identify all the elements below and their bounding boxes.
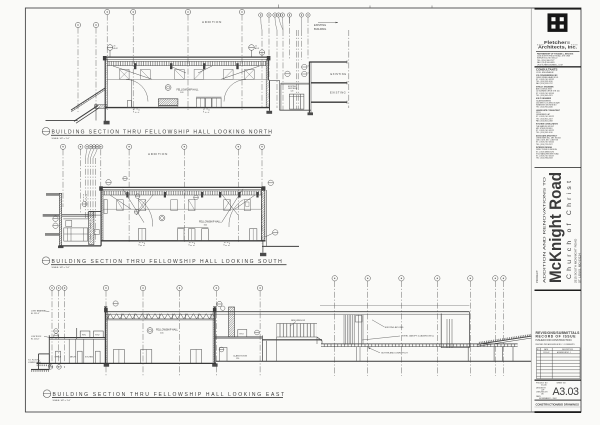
svg-text:120: 120 [236,358,239,360]
svg-text:KITCHEN: KITCHEN [85,357,94,359]
svg-text:EXISTING BEYOND: EXISTING BEYOND [385,327,404,329]
svg-text:DESCRIPTION: DESCRIPTION [562,349,574,351]
svg-text:BUILDING SECTION THRU FELLOWSH: BUILDING SECTION THRU FELLOWSHIP HALL LO… [53,392,286,398]
svg-text:SCALE: 1/8" = 1'-0": SCALE: 1/8" = 1'-0" [52,266,70,269]
svg-text:MECH: MECH [70,357,76,359]
svg-text:12-20-02: 12-20-02 [543,352,549,354]
svg-text:TEL: (314) 984-8343: TEL: (314) 984-8343 [536,158,553,160]
svg-text:19: 19 [308,66,310,68]
svg-text:RTU: RTU [240,334,245,336]
svg-text:TEL: (314) 965-1010: TEL: (314) 965-1010 [536,132,553,134]
svg-text:FAX: (314) 993-9737: FAX: (314) 993-9737 [536,82,553,85]
svg-text:GUTTER AND DOWNSPOUT: GUTTER AND DOWNSPOUT [381,352,408,355]
svg-text:A3.03: A3.03 [553,386,580,398]
svg-text:FELLOWSHIP HALL: FELLOWSHIP HALL [177,88,200,91]
svg-text:TEL: (314) 645-4321: TEL: (314) 645-4321 [536,95,553,97]
svg-text:ADDITION: ADDITION [148,152,168,156]
svg-text:ADDITION AND RENOVATIONS TO: ADDITION AND RENOVATIONS TO [543,176,547,283]
svg-text:CONSULTANTS: CONSULTANTS [536,67,557,71]
svg-text:01-040: 01-040 [541,385,547,387]
svg-text:TEL: (314) 725-2927: TEL: (314) 725-2927 [536,144,553,146]
svg-text:STEEL CANOPY (CLASSROOM C): STEEL CANOPY (CLASSROOM C) [402,335,434,338]
svg-text:EXISTING: EXISTING [314,23,326,27]
svg-text:McKnight Road: McKnight Road [548,172,566,283]
svg-text:FELLOWSHIP HALL: FELLOWSHIP HALL [199,221,222,224]
svg-text:Architects, Inc.: Architects, Inc. [538,45,577,50]
svg-text:SCALE: 1/8" = 1'-0": SCALE: 1/8" = 1'-0" [52,137,70,140]
svg-text:23: 23 [114,46,116,48]
svg-text:10: 10 [255,46,257,48]
svg-text:ADDITION: ADDITION [202,20,222,24]
svg-text:SHEET NO: SHEET NO [557,382,567,384]
svg-text:OFFICE: OFFICE [55,357,62,359]
svg-text:EXISTING: EXISTING [331,72,347,76]
svg-text:PROJECT:: PROJECT: [535,270,539,283]
svg-text:RECORD OF ISSUE: RECORD OF ISSUE [536,335,577,339]
svg-text:ISSUED FOR CONSTRUCTION: ISSUED FOR CONSTRUCTION [536,338,572,342]
svg-text:FELLOWSHIP HALL: FELLOWSHIP HALL [156,329,179,332]
svg-text:RTU: RTU [95,335,100,337]
svg-text:CIVIL ENGINEER: CIVIL ENGINEER [536,72,554,74]
svg-text:REVISED PER ADDENDUM NO. 1 COM: REVISED PER ADDENDUM NO. 1 COMMENTS [536,343,576,346]
svg-text:JW: JW [541,394,544,396]
svg-text:BUILDING SECTION THRU FELLOWSH: BUILDING SECTION THRU FELLOWSHIP HALL LO… [52,130,274,136]
svg-text:17: 17 [308,73,310,75]
svg-text:TEL: (314) 961-8446: TEL: (314) 961-8446 [536,107,553,109]
svg-text:BUILDING SECTION THRU FELLOWSH: BUILDING SECTION THRU FELLOWSHIP HALL LO… [52,259,284,265]
svg-text:EL 111'-0": EL 111'-0" [31,339,40,341]
svg-text:CONSTRUCTION/BID DRAWINGS: CONSTRUCTION/BID DRAWINGS [536,402,580,406]
svg-text:BUILDING: BUILDING [314,27,326,31]
svg-text:FAX: (314) 821-0368: FAX: (314) 821-0368 [536,119,553,122]
svg-text:ST. LOUIS, MO 63124: ST. LOUIS, MO 63124 [577,253,581,283]
svg-text:EL 115'-4": EL 115'-4" [31,313,40,315]
svg-text:LFLETCHER@SWBELL.COM: LFLETCHER@SWBELL.COM [537,64,563,66]
svg-text:EXISTING: EXISTING [330,91,346,95]
svg-text:NEW WINDOW: NEW WINDOW [291,320,305,322]
svg-text:RTU: RTU [82,335,87,337]
svg-text:SCALE: 1/8" = 1'-0": SCALE: 1/8" = 1'-0" [53,399,71,402]
svg-text:124: 124 [291,90,294,92]
